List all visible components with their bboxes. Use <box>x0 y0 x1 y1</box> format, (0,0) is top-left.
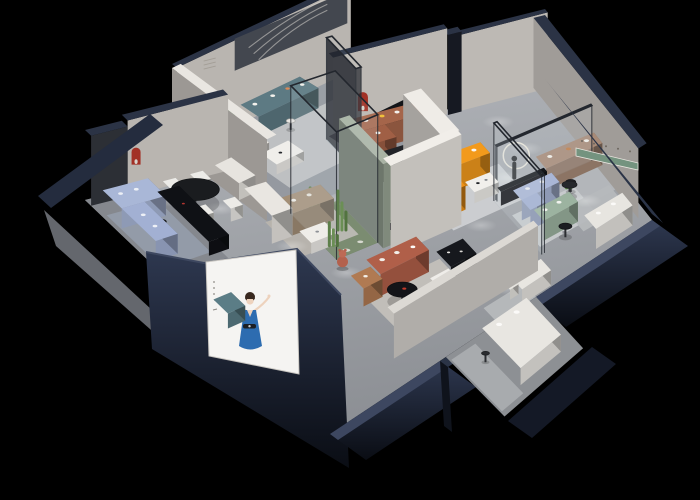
floorplan-render: 华悦 <box>0 0 700 500</box>
spotlight-glow <box>465 219 497 232</box>
poster-caption-dots <box>213 287 215 289</box>
poster-caption-dots <box>213 281 215 283</box>
render-canvas: 华悦 <box>0 0 700 500</box>
poster-caption-dots <box>213 293 215 295</box>
poster-panel <box>206 250 299 374</box>
niche-red-dining <box>132 148 141 165</box>
pebbles-b <box>357 241 363 244</box>
